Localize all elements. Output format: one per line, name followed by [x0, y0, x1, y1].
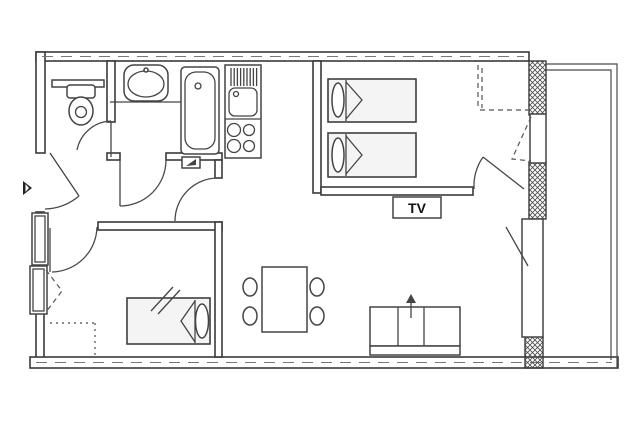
pillow-icon	[332, 83, 344, 117]
facade-wall-hatch-bottom	[525, 336, 543, 368]
window-casement-swing	[46, 270, 62, 312]
closet-outline-dashed	[478, 65, 528, 110]
bathtub-icon	[181, 67, 219, 154]
entry-door-leaf	[50, 153, 79, 196]
balcony-door-swing	[512, 117, 531, 161]
chair-icon	[243, 278, 257, 296]
entry-door-swing	[45, 196, 79, 209]
bedroom2-door-leaf	[483, 157, 524, 189]
wc-partition-wall	[107, 61, 115, 122]
facade-wall-hatch-top	[529, 61, 546, 115]
living-room-furniture: TV	[243, 197, 460, 355]
dining-table-icon	[262, 267, 307, 332]
bedroom1-right-wall	[215, 222, 222, 357]
doors	[45, 121, 524, 272]
chair-icon	[243, 307, 257, 325]
bedroom2-door-swing	[474, 157, 483, 189]
bath-bottom-wall-left	[107, 153, 120, 160]
balcony-rail-inner	[546, 70, 611, 360]
wardrobe-outline-dotted	[50, 323, 95, 356]
bathroom-fixtures	[52, 65, 219, 168]
balcony-door-icon	[530, 114, 546, 163]
facade-wall-hatch-mid	[529, 162, 546, 219]
kitchen-fixtures	[225, 65, 261, 158]
drainboard-grooves	[231, 68, 257, 86]
fold-out-arrow-head	[406, 294, 416, 303]
bedroom2-left-wall	[313, 61, 321, 193]
pillow-icon	[332, 138, 344, 172]
bedroom1-door-swing	[52, 227, 97, 272]
toilet-bowl	[69, 97, 93, 125]
toilet-icon	[67, 85, 95, 98]
hall-wall-stub	[215, 160, 222, 178]
sofa-bed-icon	[370, 294, 460, 355]
balcony	[546, 64, 617, 368]
floor-plan: TV	[0, 0, 640, 427]
tv-label: TV	[408, 200, 427, 216]
bedroom1-furniture	[50, 287, 210, 356]
bedroom2-furniture	[328, 65, 528, 177]
living-room-door-swing	[175, 178, 218, 221]
chair-icon	[310, 307, 324, 325]
bedroom2-bottom-wall	[321, 187, 473, 195]
balcony-window-icon	[522, 219, 543, 337]
bedroom1-top-wall	[98, 222, 222, 230]
washbasin-faucet	[144, 68, 148, 72]
balcony-rail-outer	[546, 64, 617, 368]
chair-icon	[310, 278, 324, 296]
left-wall-upper	[36, 52, 45, 153]
pillow-icon	[196, 304, 209, 338]
bathroom-door-swing	[120, 160, 166, 206]
